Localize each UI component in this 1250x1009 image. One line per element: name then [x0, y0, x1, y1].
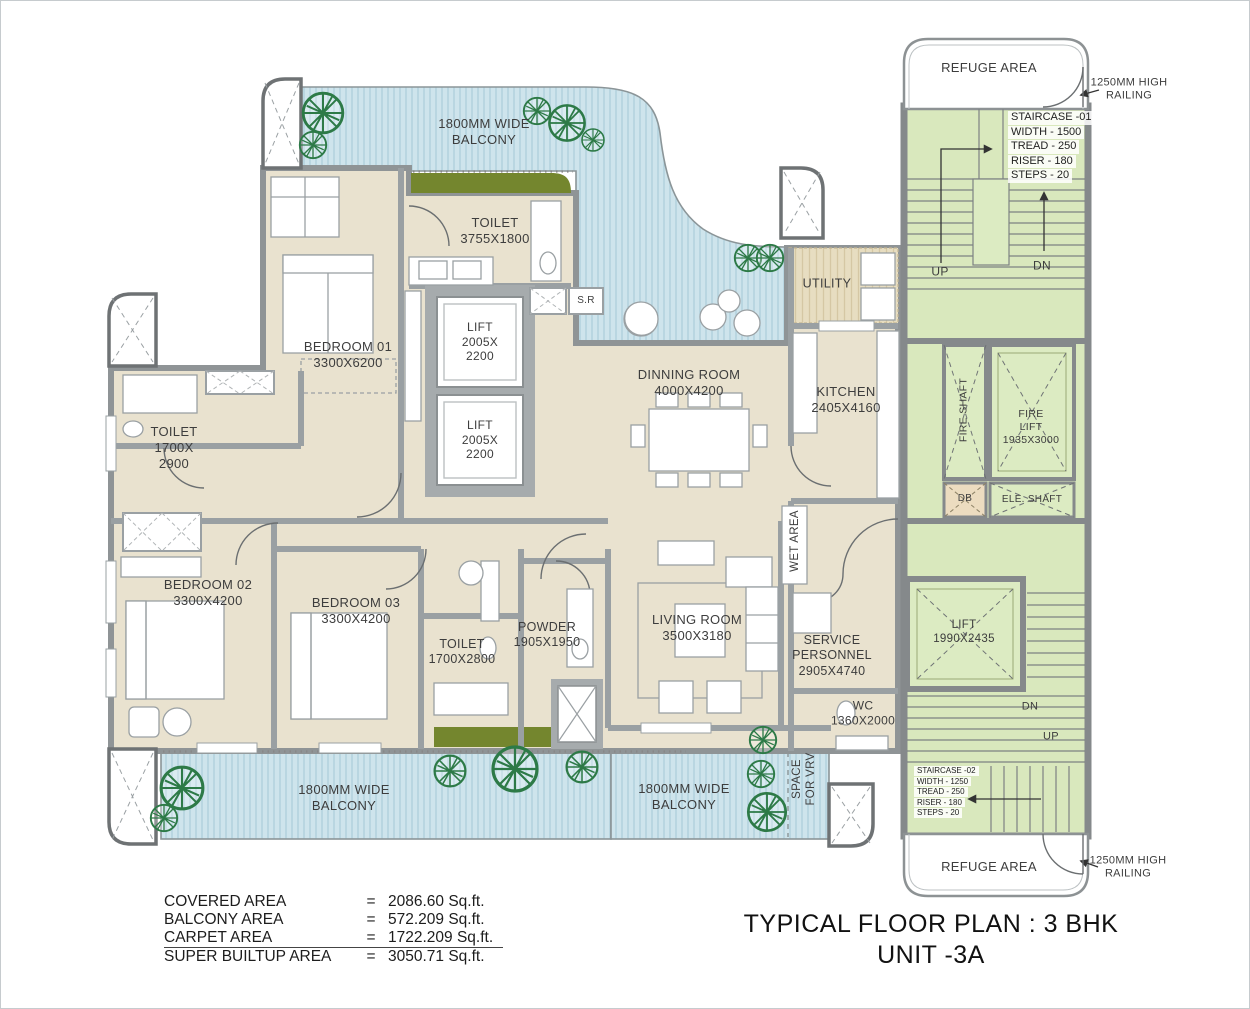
fire-lift-box [990, 345, 1074, 479]
refuge-top-shape [904, 39, 1088, 109]
area-row-covered: COVERED AREA = 2086.60 Sq.ft. [164, 893, 503, 911]
core-lift-box [907, 579, 1023, 689]
staircase1-line: WIDTH - 1500 [1008, 126, 1084, 140]
staircase2-spec: STAIRCASE -02 WIDTH - 1250 TREAD - 250 R… [914, 766, 979, 819]
staircase2-line: WIDTH - 1250 [914, 777, 971, 787]
plan-title: TYPICAL FLOOR PLAN : 3 BHK UNIT -3A [706, 909, 1156, 971]
staircase1-landing [973, 179, 1009, 265]
main-lift-block [425, 285, 535, 497]
area-row-super-builtup: SUPER BUILTUP AREA = 3050.71 Sq.ft. [164, 948, 503, 966]
db-box [944, 483, 986, 517]
equals-sign: = [360, 893, 382, 911]
area-label: SUPER BUILTUP AREA [164, 948, 360, 966]
staircase1-spec: STAIRCASE -01 WIDTH - 1500 TREAD - 250 R… [1008, 111, 1095, 184]
floor-plan-page: 1800MM WIDE BALCONY BEDROOM 01 3300X6200… [0, 0, 1250, 1009]
ele-shaft-box [990, 483, 1074, 517]
area-table: COVERED AREA = 2086.60 Sq.ft. BALCONY AR… [164, 893, 503, 966]
balcony-bottom-left-shape [161, 753, 611, 839]
staircase2-line: RISER - 180 [914, 798, 965, 808]
area-row-carpet: CARPET AREA = 1722.209 Sq.ft. [164, 929, 503, 948]
staircase1-line: STAIRCASE -01 [1008, 111, 1095, 125]
staircase2-line: STEPS - 20 [914, 808, 962, 818]
staircase2-line: STAIRCASE -02 [914, 766, 979, 776]
area-label: CARPET AREA [164, 929, 360, 947]
area-label: COVERED AREA [164, 893, 360, 911]
refuge-bottom-shape [904, 834, 1088, 896]
staircase2-line: TREAD - 250 [914, 787, 968, 797]
plan-title-line1: TYPICAL FLOOR PLAN : 3 BHK [706, 909, 1156, 940]
area-label: BALCONY AREA [164, 911, 360, 929]
equals-sign: = [360, 929, 382, 947]
staircase1-line: TREAD - 250 [1008, 140, 1079, 154]
area-value: 572.209 Sq.ft. [382, 911, 503, 929]
staircase1-line: RISER - 180 [1008, 155, 1076, 169]
fire-shaft-box [944, 345, 986, 479]
area-row-balcony: BALCONY AREA = 572.209 Sq.ft. [164, 911, 503, 929]
planter-bottom [434, 727, 554, 747]
area-value: 1722.209 Sq.ft. [382, 929, 503, 947]
planter-top [411, 173, 571, 193]
area-value: 2086.60 Sq.ft. [382, 893, 503, 911]
staircase1-line: STEPS - 20 [1008, 169, 1072, 183]
equals-sign: = [360, 911, 382, 929]
plan-title-line2: UNIT -3A [706, 940, 1156, 971]
area-value: 3050.71 Sq.ft. [382, 948, 503, 966]
equals-sign: = [360, 948, 382, 966]
